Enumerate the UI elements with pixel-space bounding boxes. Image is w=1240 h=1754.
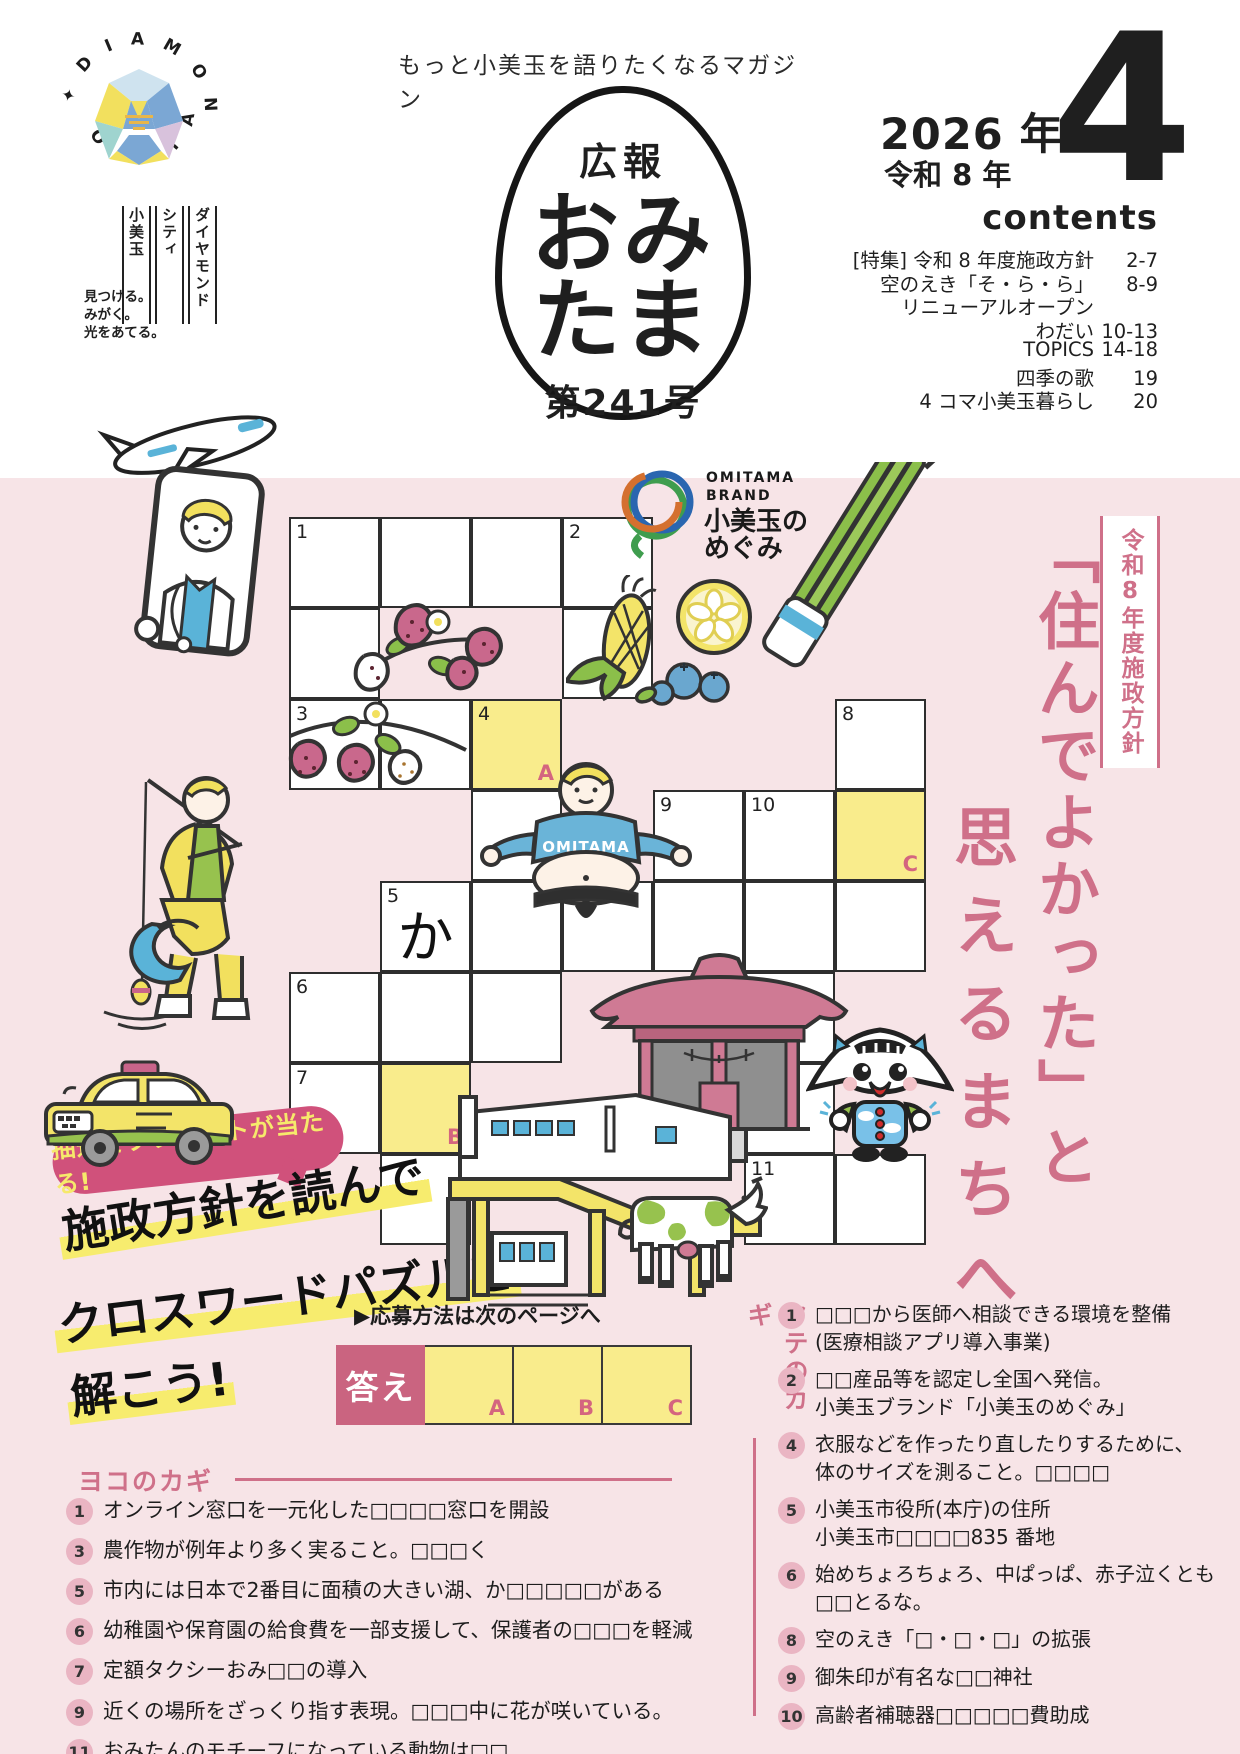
down-clue: 1 □□□から医師へ相談できる環境を整備(医療相談アプリ導入事業) xyxy=(778,1300,1230,1356)
contents-title: contents xyxy=(900,198,1158,238)
down-clue: 10 高齢者補聴器□□□□□費助成 xyxy=(778,1701,1230,1730)
crossword-cell[interactable]: 8 xyxy=(835,699,926,790)
crossword-cell[interactable]: 6 xyxy=(289,972,380,1063)
crossword-cell[interactable]: 9 xyxy=(653,790,744,881)
answer-slot-a[interactable]: A xyxy=(425,1345,514,1425)
contents-row: [特集] 令和 8 年度施政方針 2-7 xyxy=(690,244,1158,268)
clue-number-badge: 6 xyxy=(66,1618,93,1645)
contents-pages: 19 xyxy=(1094,367,1158,390)
answer-slot-c[interactable]: C xyxy=(603,1345,692,1425)
clue-number-badge: 9 xyxy=(778,1665,805,1692)
contents-list: [特集] 令和 8 年度施政方針 2-7 空のえき「そ・ら・ら」 8-9 リニュ… xyxy=(690,244,1158,409)
fiscal-policy-badge: 令和8年度施政方針 xyxy=(1100,516,1160,768)
crossword-cell[interactable] xyxy=(562,881,653,972)
down-clue: 4 衣服などを作ったり直したりするために、体のサイズを測ること。□□□□ xyxy=(778,1430,1230,1486)
cell-number: 2 xyxy=(569,521,581,543)
cell-number: 10 xyxy=(751,794,775,816)
cell-number: 4 xyxy=(478,703,490,725)
clue-number-badge: 1 xyxy=(66,1498,93,1525)
clue-number-badge: 3 xyxy=(66,1538,93,1565)
crossword-cell[interactable] xyxy=(744,1063,835,1154)
clue-text: 始めちょろちょろ、中ぱっぱ、赤子泣くとも□□とるな。 xyxy=(815,1560,1215,1616)
clue-text: 衣服などを作ったり直したりするために、体のサイズを測ること。□□□□ xyxy=(815,1430,1194,1486)
contents-pages: 2-7 xyxy=(1094,249,1158,272)
clue-number-badge: 9 xyxy=(66,1699,93,1726)
answer-slot-b[interactable]: B xyxy=(514,1345,603,1425)
cell-number: 7 xyxy=(296,1067,308,1089)
down-clue: 5 小美玉市役所(本庁)の住所小美玉市□□□□835 番地 xyxy=(778,1495,1230,1551)
issue-month: 4 xyxy=(1022,18,1222,203)
contents-row: 四季の歌 19 xyxy=(690,362,1158,386)
crossword-cell[interactable] xyxy=(289,608,380,699)
crossword-cell[interactable] xyxy=(471,517,562,608)
cell-answer-letter: B xyxy=(447,1125,463,1149)
crossword-cell[interactable] xyxy=(835,1154,926,1245)
answer-strip: 答え A B C xyxy=(336,1345,692,1425)
crossword-cell[interactable] xyxy=(380,972,471,1063)
clue-text: □□□から医師へ相談できる環境を整備(医療相談アプリ導入事業) xyxy=(815,1300,1171,1356)
city-slogan: 見つける。 みがく。 光をあてる。 xyxy=(84,288,165,343)
clue-text: □□産品等を認定し全国へ発信。小美玉ブランド「小美玉のめぐみ」 xyxy=(815,1365,1136,1421)
across-clue: 9 近くの場所をざっくり指す表現。□□□中に花が咲いている。 xyxy=(66,1697,706,1726)
crossword-cell[interactable] xyxy=(562,608,653,699)
airplane-illustration xyxy=(92,384,288,484)
slot-letter: B xyxy=(578,1396,594,1420)
crossword-cell[interactable] xyxy=(653,881,744,972)
crossword-cell[interactable] xyxy=(471,972,562,1063)
across-clue: 5 市内には日本で2番目に面積の大きい湖、か□□□□□がある xyxy=(66,1576,706,1605)
headline-left-column: 思えるまちへ xyxy=(934,804,1026,1364)
contents-pages: 20 xyxy=(1094,390,1158,413)
crossword-cell[interactable]: 11 xyxy=(744,1154,835,1245)
contents-label: TOPICS xyxy=(1023,338,1094,361)
across-clues-title: ヨコのカギ xyxy=(78,1462,213,1498)
down-clue: 9 御朱印が有名な□□神社 xyxy=(778,1663,1230,1692)
crossword-cell[interactable]: 10 xyxy=(744,790,835,881)
clue-text: 高齢者補聴器□□□□□費助成 xyxy=(815,1701,1089,1729)
clue-number-badge: 8 xyxy=(778,1627,805,1654)
contents-row: リニューアルオープン xyxy=(690,291,1158,315)
contents-pages: 8-9 xyxy=(1094,273,1158,296)
crossword-cell[interactable] xyxy=(471,790,562,881)
clue-number-badge: 10 xyxy=(778,1703,805,1730)
cell-number: 1 xyxy=(296,521,308,543)
answer-label: 答え xyxy=(336,1345,425,1425)
clue-text: 小美玉市役所(本庁)の住所小美玉市□□□□835 番地 xyxy=(815,1495,1055,1551)
clue-number-badge: 4 xyxy=(778,1432,805,1459)
crossword-cell[interactable] xyxy=(835,881,926,972)
egg-kanji: 広報 xyxy=(502,131,744,186)
clue-text: オンライン窓口を一元化した□□□□窓口を開設 xyxy=(103,1496,549,1525)
cell-prefilled-char: か xyxy=(382,893,469,974)
crossword-cell[interactable] xyxy=(380,699,471,790)
crossword-grid: 1 2 xyxy=(289,517,926,1245)
crossword-cell[interactable]: 5 か xyxy=(380,881,471,972)
crossword-cell[interactable]: 4 A xyxy=(471,699,562,790)
clue-number-badge: 2 xyxy=(778,1367,805,1394)
year-era: 令和 8 年 xyxy=(884,152,1011,194)
crossword-cell[interactable] xyxy=(744,881,835,972)
cell-number: 11 xyxy=(751,1158,775,1180)
clue-number-badge: 5 xyxy=(778,1497,805,1524)
down-clue: 8 空のえき「□・□・□」の拡張 xyxy=(778,1625,1230,1654)
across-clue: 1 オンライン窓口を一元化した□□□□窓口を開設 xyxy=(66,1496,706,1525)
cell-number: 8 xyxy=(842,703,854,725)
crossword-cell[interactable]: C xyxy=(835,790,926,881)
crossword-cell[interactable]: 3 xyxy=(289,699,380,790)
clue-text: 農作物が例年より多く実ること。□□□く xyxy=(103,1536,489,1565)
crossword-cell[interactable] xyxy=(471,881,562,972)
clue-number-badge: 5 xyxy=(66,1578,93,1605)
apply-method-note: ▶応募方法は次のページへ xyxy=(354,1300,601,1330)
clue-number-badge: 6 xyxy=(778,1562,805,1589)
clue-text: 市内には日本で2番目に面積の大きい湖、か□□□□□がある xyxy=(103,1576,664,1605)
contents-row: 空のえき「そ・ら・ら」 8-9 xyxy=(690,268,1158,292)
clue-text: 幼稚園や保育園の給食費を一部支援して、保護者の□□□を軽減 xyxy=(103,1616,692,1645)
down-clue: 6 始めちょろちょろ、中ぱっぱ、赤子泣くとも□□とるな。 xyxy=(778,1560,1230,1616)
crossword-cell[interactable]: B xyxy=(380,1063,471,1154)
contents-label: 4 コマ小美玉暮らし xyxy=(919,385,1094,414)
cell-number: 9 xyxy=(660,794,672,816)
across-clue: 11 おみたんのモチーフになっている動物は□□ xyxy=(66,1737,706,1754)
cell-answer-letter: A xyxy=(538,761,554,785)
crossword-cell[interactable]: 2 xyxy=(562,517,653,608)
crossword-cell[interactable]: 1 xyxy=(289,517,380,608)
across-clue: 3 農作物が例年より多く実ること。□□□く xyxy=(66,1536,706,1565)
contents-pages: 14-18 xyxy=(1094,338,1158,361)
clue-text: おみたんのモチーフになっている動物は□□ xyxy=(103,1737,508,1754)
across-clue: 7 定額タクシーおみ□□の導入 xyxy=(66,1656,706,1685)
clue-text: 近くの場所をざっくり指す表現。□□□中に花が咲いている。 xyxy=(103,1697,673,1726)
contents-row: 4 コマ小美玉暮らし 20 xyxy=(690,385,1158,409)
slot-letter: A xyxy=(489,1396,505,1420)
crossword-cell[interactable] xyxy=(744,972,835,1063)
down-clue: 2 □□産品等を認定し全国へ発信。小美玉ブランド「小美玉のめぐみ」 xyxy=(778,1365,1230,1421)
clue-number-badge: 7 xyxy=(66,1658,93,1685)
headline-right-column: 「住んでよかった」と xyxy=(1018,522,1108,1222)
cell-number: 6 xyxy=(296,976,308,998)
diamond-city-omitama-logo: ✦ D I A M O N D C I T Y ✦ O M I T A M A xyxy=(50,26,228,206)
cell-number: 3 xyxy=(296,703,308,725)
magazine-cover: ✦ D I A M O N D C I T Y ✦ O M I T A M A … xyxy=(0,0,1240,1754)
contents-row: TOPICS 14-18 xyxy=(690,338,1158,362)
across-clue: 6 幼稚園や保育園の給食費を一部支援して、保護者の□□□を軽減 xyxy=(66,1616,706,1645)
clue-text: 御朱印が有名な□□神社 xyxy=(815,1663,1033,1691)
clue-text: 空のえき「□・□・□」の拡張 xyxy=(815,1625,1091,1653)
slot-letter: C xyxy=(668,1396,683,1420)
city-emblem-icon: ✦ D I A M O N D C I T Y ✦ O M I T A M A xyxy=(50,26,228,206)
clue-number-badge: 11 xyxy=(66,1739,93,1754)
across-clues-list: 1 オンライン窓口を一元化した□□□□窓口を開設 3 農作物が例年より多く実るこ… xyxy=(66,1496,706,1754)
clue-number-badge: 1 xyxy=(778,1302,805,1329)
crossword-cell[interactable] xyxy=(380,517,471,608)
clue-text: 定額タクシーおみ□□の導入 xyxy=(103,1656,367,1685)
cell-answer-letter: C xyxy=(903,852,918,876)
across-title-rule xyxy=(235,1478,672,1481)
down-clues-list: 1 □□□から医師へ相談できる環境を整備(医療相談アプリ導入事業) 2 □□産品… xyxy=(778,1300,1230,1739)
down-title-rule xyxy=(753,1438,756,1716)
